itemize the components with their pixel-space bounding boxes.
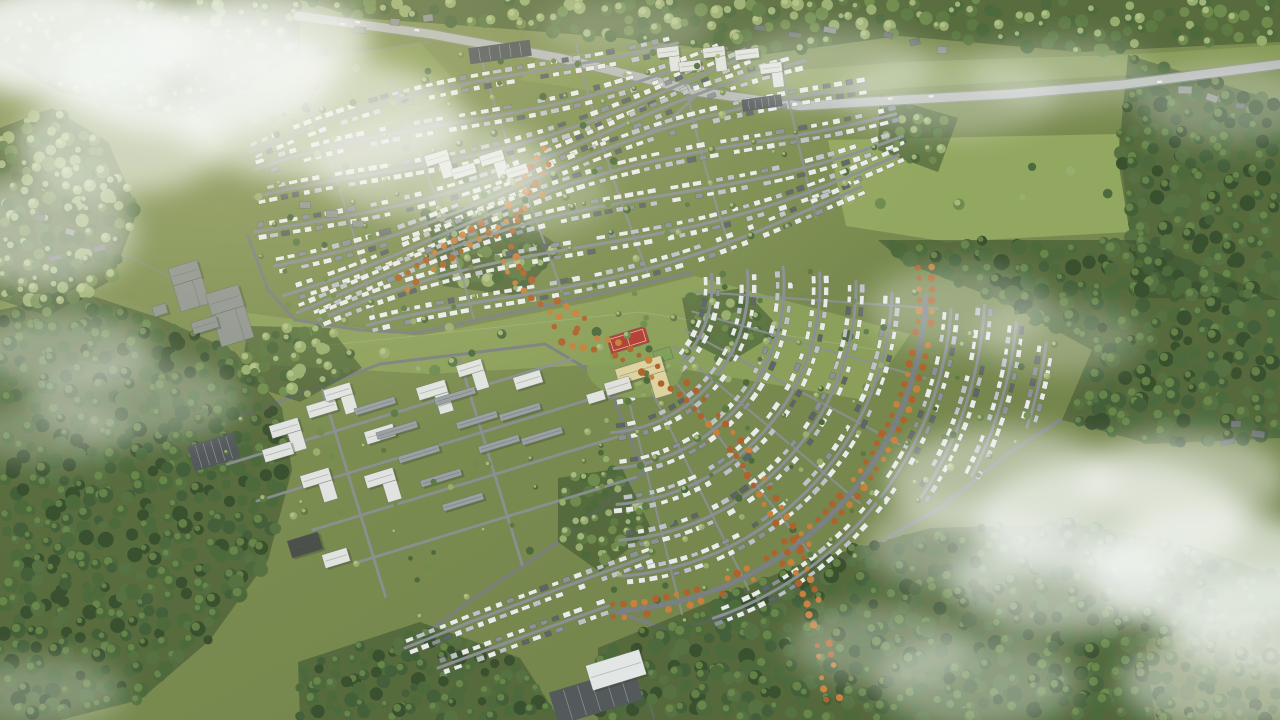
scene-svg	[0, 0, 1280, 720]
fog-cloud	[540, 0, 710, 58]
fog-cloud	[866, 499, 1050, 591]
aerial-community-render	[0, 0, 1280, 720]
fog-cloud	[970, 38, 1154, 110]
fog-cloud	[1077, 432, 1280, 524]
fog-cloud	[430, 155, 610, 235]
fog-cloud	[976, 302, 1140, 374]
